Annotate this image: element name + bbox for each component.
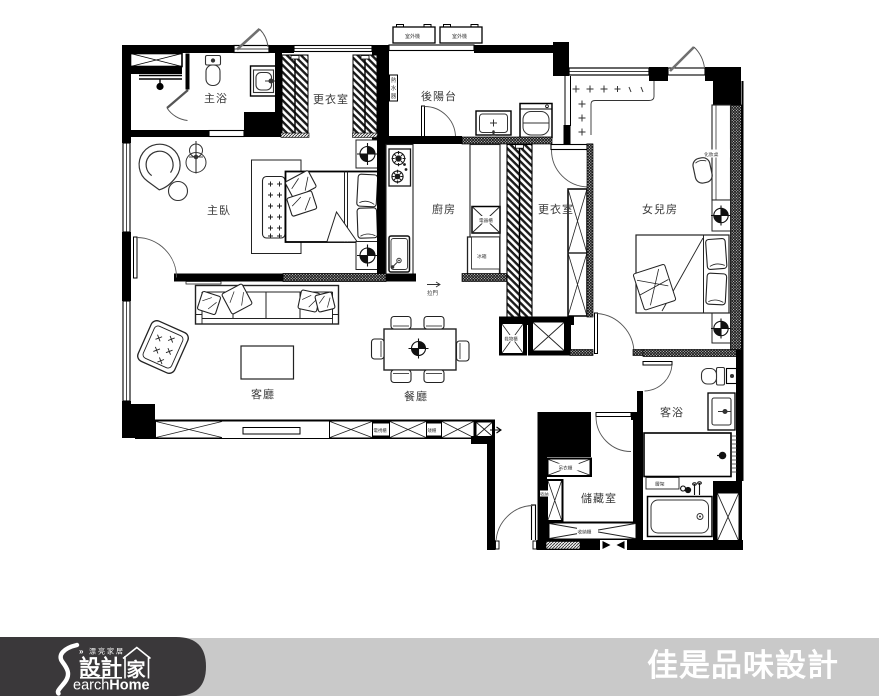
svg-text:吊衣櫃: 吊衣櫃 bbox=[559, 465, 573, 472]
svg-text:收納櫃: 收納櫃 bbox=[578, 529, 592, 536]
svg-text:主臥: 主臥 bbox=[207, 204, 231, 217]
svg-text:earchHome: earchHome bbox=[73, 678, 150, 694]
svg-text:客浴: 客浴 bbox=[660, 405, 684, 419]
svg-text:冰箱: 冰箱 bbox=[477, 253, 487, 260]
svg-text:室外機: 室外機 bbox=[452, 33, 467, 40]
svg-text:後陽台: 後陽台 bbox=[421, 89, 457, 103]
svg-text:室外機: 室外機 bbox=[405, 33, 420, 40]
svg-text:更衣室: 更衣室 bbox=[538, 202, 574, 216]
svg-text:矮櫃: 矮櫃 bbox=[428, 427, 437, 434]
svg-text:漂亮家居: 漂亮家居 bbox=[89, 647, 125, 656]
svg-text:儲藏室: 儲藏室 bbox=[581, 491, 617, 505]
svg-text:廚房: 廚房 bbox=[432, 202, 456, 216]
svg-text:餐廳: 餐廳 bbox=[404, 389, 428, 403]
svg-text:佳是品味設計: 佳是品味設計 bbox=[647, 648, 839, 683]
svg-text:鞋物櫃: 鞋物櫃 bbox=[505, 336, 519, 343]
svg-text:電視櫃: 電視櫃 bbox=[374, 427, 388, 434]
svg-text:水: 水 bbox=[391, 84, 397, 92]
svg-text:層架: 層架 bbox=[655, 482, 665, 488]
svg-text:主浴: 主浴 bbox=[204, 92, 228, 105]
svg-text:拉門: 拉門 bbox=[427, 289, 439, 297]
svg-text:女兒房: 女兒房 bbox=[642, 202, 678, 216]
svg-text:客廳: 客廳 bbox=[251, 387, 275, 401]
svg-text:電器櫃: 電器櫃 bbox=[479, 217, 493, 224]
svg-text:»: » bbox=[79, 647, 84, 656]
svg-text:器: 器 bbox=[391, 93, 397, 100]
svg-text:設計: 設計 bbox=[79, 655, 122, 680]
svg-text:收納: 收納 bbox=[540, 491, 548, 498]
svg-text:更衣室: 更衣室 bbox=[313, 92, 349, 106]
svg-text:熱: 熱 bbox=[391, 76, 397, 84]
svg-text:化妝桌: 化妝桌 bbox=[704, 151, 719, 158]
